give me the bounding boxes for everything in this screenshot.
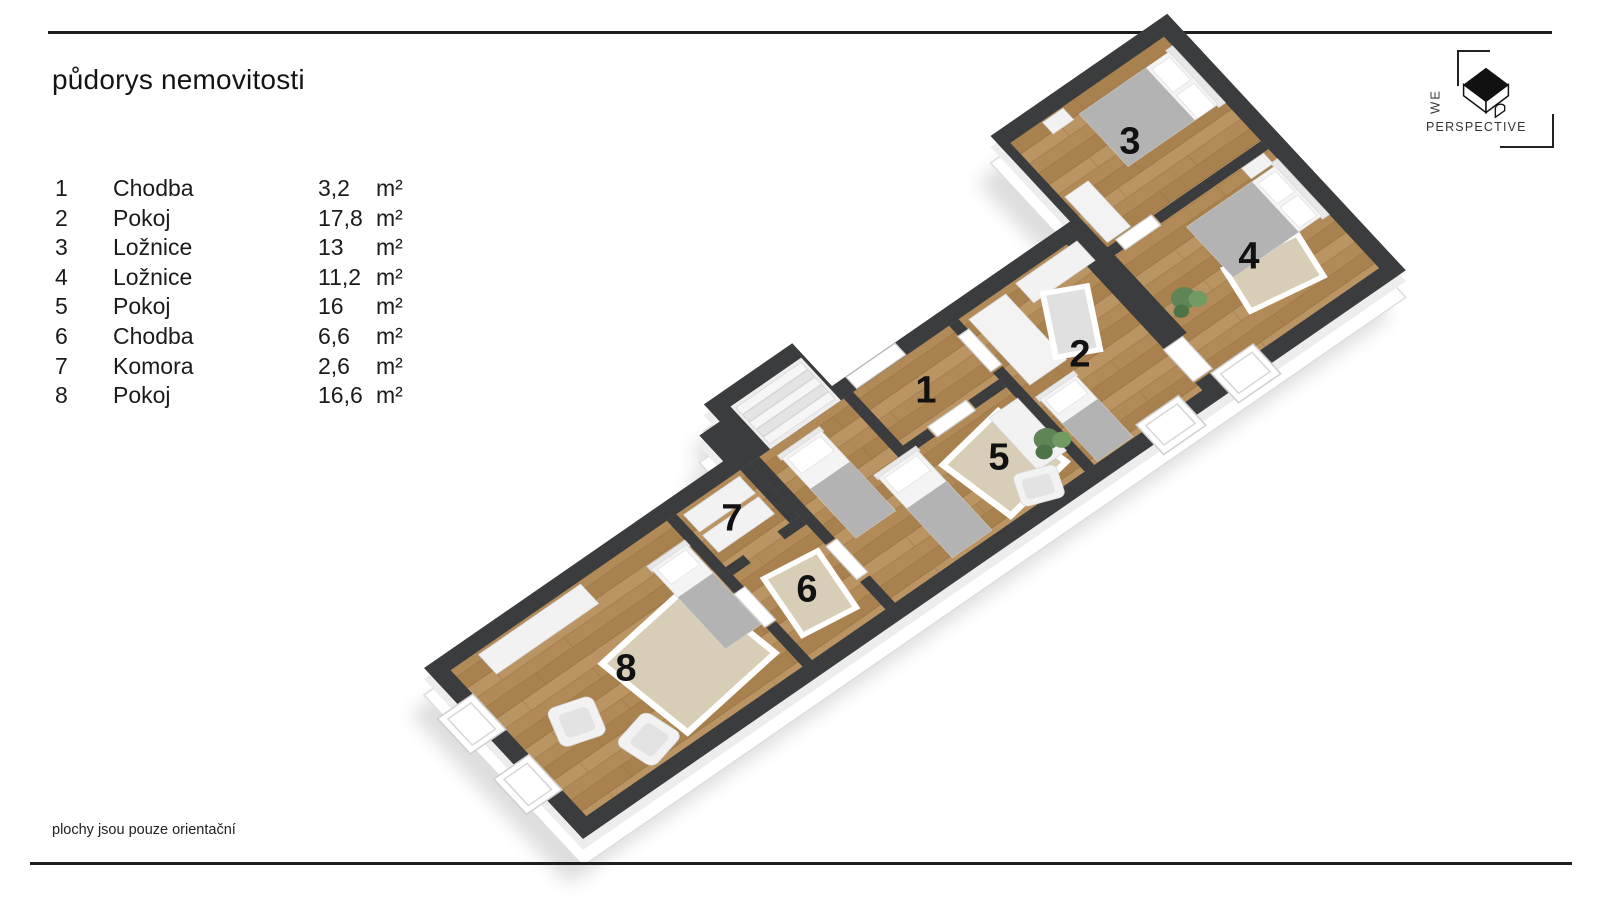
floor-plan-rendering: 1 2 3 4 5 6 7 8 bbox=[0, 0, 1600, 900]
room-label-4: 4 bbox=[1238, 236, 1259, 279]
room-label-2: 2 bbox=[1069, 334, 1090, 377]
room-label-8: 8 bbox=[615, 648, 636, 691]
we-perspective-logo: WE PERSPECTIVE bbox=[1418, 42, 1568, 157]
logo-text-we: WE bbox=[1428, 87, 1443, 117]
room-label-6: 6 bbox=[796, 569, 817, 612]
room-label-7: 7 bbox=[721, 498, 742, 541]
floor-plan-page: půdorys nemovitosti 1 Chodba 3,2 m² 2 Po… bbox=[0, 0, 1600, 900]
footer-disclaimer: plochy jsou pouze orientační bbox=[52, 822, 236, 838]
room-label-3: 3 bbox=[1119, 121, 1140, 164]
bottom-divider-line bbox=[30, 862, 1572, 865]
room-label-1: 1 bbox=[915, 370, 936, 413]
house-icon bbox=[1458, 64, 1514, 120]
floor-plan-svg bbox=[0, 0, 1600, 900]
logo-text-perspective: PERSPECTIVE bbox=[1426, 120, 1527, 134]
room-label-5: 5 bbox=[988, 437, 1009, 480]
building-plan bbox=[324, 14, 1415, 864]
